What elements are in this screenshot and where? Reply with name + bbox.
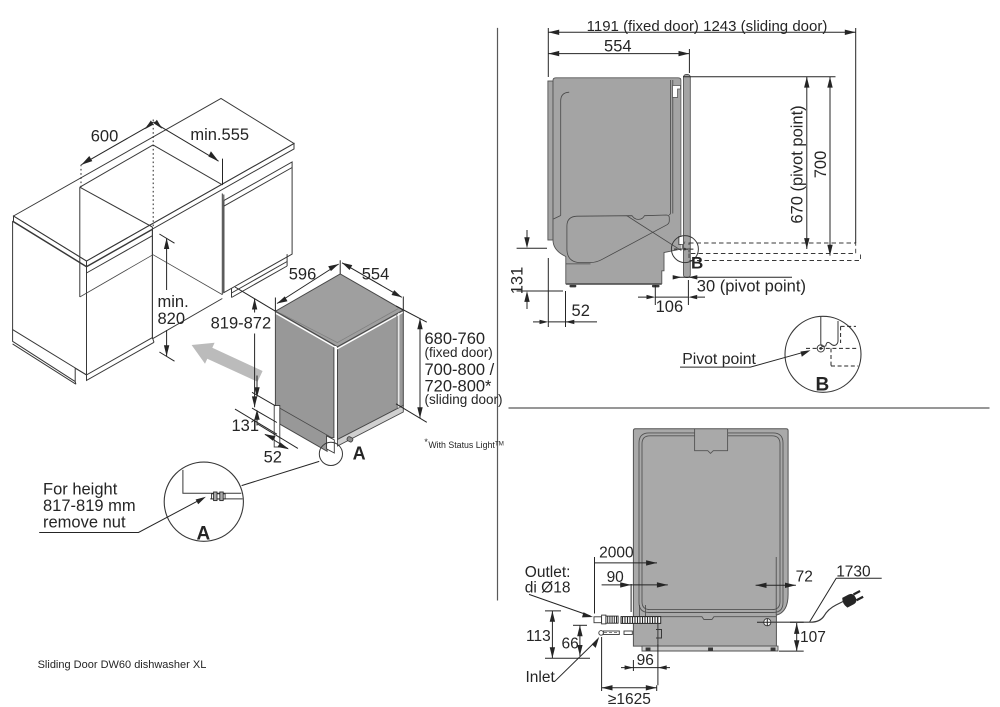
- svg-text:90: 90: [607, 569, 625, 586]
- svg-text:B: B: [816, 375, 830, 396]
- svg-text:A: A: [353, 444, 366, 464]
- svg-text:819-872: 819-872: [211, 315, 272, 333]
- svg-text:B: B: [691, 254, 703, 273]
- svg-text:131: 131: [232, 417, 260, 435]
- svg-text:(fixed door): (fixed door): [425, 345, 493, 360]
- svg-text:106: 106: [656, 298, 684, 316]
- svg-text:820: 820: [158, 310, 186, 328]
- svg-text:min.: min.: [158, 293, 189, 311]
- svg-text:1191 (fixed door) 1243 (slidin: 1191 (fixed door) 1243 (sliding door): [587, 18, 828, 35]
- svg-text:Outlet:: Outlet:: [525, 564, 571, 581]
- svg-text:For height: For height: [43, 481, 118, 499]
- svg-text:Inlet: Inlet: [526, 669, 556, 686]
- svg-text:66: 66: [562, 636, 579, 653]
- svg-text:52: 52: [264, 449, 282, 467]
- svg-text:di Ø18: di Ø18: [525, 580, 571, 597]
- svg-text:Sliding Door DW60 dishwasher X: Sliding Door DW60 dishwasher XL: [38, 659, 207, 671]
- svg-text:52: 52: [572, 302, 590, 320]
- svg-text:Pivot point: Pivot point: [682, 351, 756, 368]
- svg-text:554: 554: [604, 38, 632, 56]
- svg-text:600: 600: [91, 128, 119, 146]
- svg-text:113: 113: [526, 628, 551, 645]
- svg-text:2000: 2000: [599, 545, 634, 562]
- svg-text:A: A: [197, 524, 211, 545]
- svg-text:554: 554: [362, 266, 390, 284]
- svg-text:30 (pivot point): 30 (pivot point): [697, 278, 806, 296]
- svg-text:remove nut: remove nut: [43, 514, 126, 532]
- svg-text:131: 131: [509, 267, 527, 295]
- svg-text:596: 596: [289, 266, 317, 284]
- svg-text:(sliding door): (sliding door): [425, 392, 503, 407]
- svg-text:700-800 /: 700-800 /: [425, 361, 495, 379]
- svg-text:107: 107: [800, 629, 826, 646]
- svg-text:72: 72: [796, 569, 813, 586]
- svg-text:min.555: min.555: [190, 126, 249, 144]
- svg-text:670 (pivot point): 670 (pivot point): [789, 105, 807, 223]
- svg-text:≥1625: ≥1625: [608, 691, 651, 707]
- svg-text:817-819 mm: 817-819 mm: [43, 497, 136, 515]
- svg-text:700: 700: [812, 151, 830, 179]
- svg-text:96: 96: [637, 652, 654, 669]
